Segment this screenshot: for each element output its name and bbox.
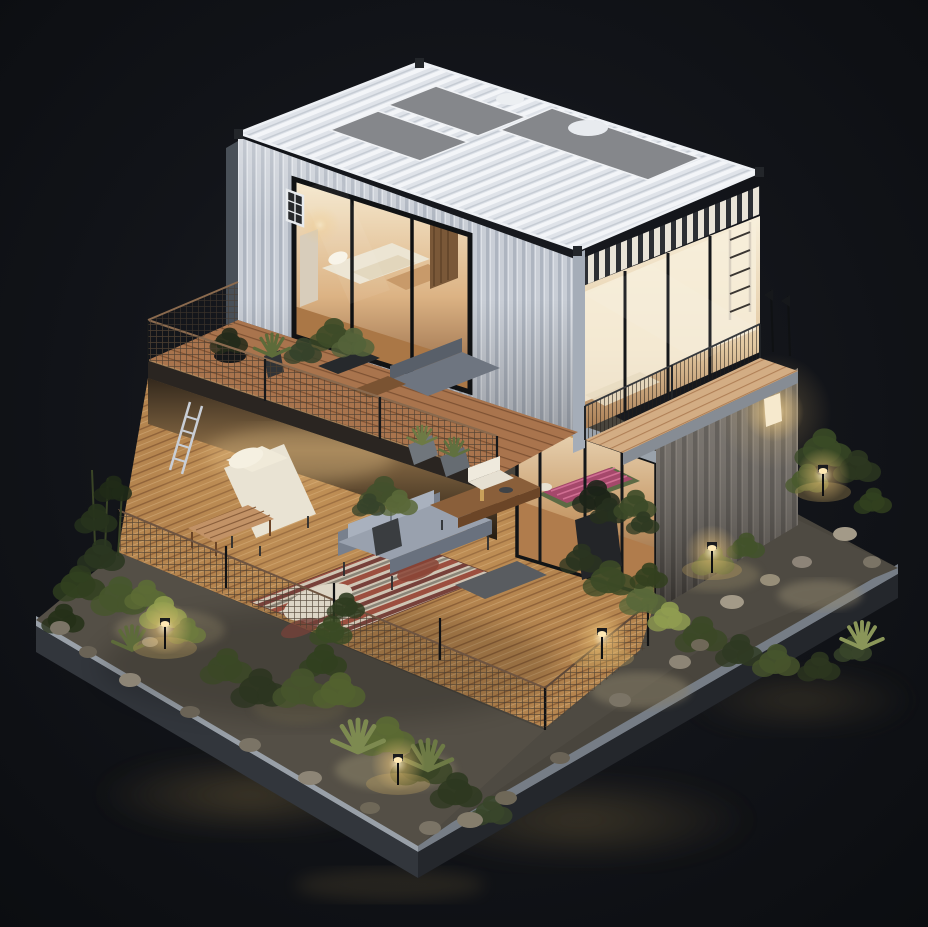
stone [79, 646, 97, 658]
stone [50, 621, 70, 635]
stone [863, 556, 881, 568]
stone [609, 693, 631, 707]
container-house-render [0, 0, 928, 927]
stone [792, 556, 812, 568]
stone [720, 595, 744, 609]
stone [691, 639, 709, 651]
lit-gravel [778, 580, 862, 610]
render-canvas [0, 0, 928, 927]
floor-reflection [295, 869, 485, 901]
stone [119, 673, 141, 687]
wall-lamp [764, 393, 782, 427]
path-light [575, 611, 629, 665]
roof-vent [568, 120, 608, 136]
stone [669, 655, 691, 669]
path-light [796, 448, 850, 502]
path-light [138, 601, 192, 655]
stone [360, 802, 380, 814]
stone [457, 812, 483, 828]
small-grid-window [287, 190, 303, 226]
corner-casting [415, 58, 424, 68]
stone [180, 706, 200, 718]
stone [550, 752, 570, 764]
stone [298, 771, 322, 785]
path-light [685, 525, 739, 579]
corner-casting [234, 129, 243, 139]
corner-casting [573, 246, 582, 256]
corner-post [573, 250, 585, 453]
stone [495, 791, 517, 805]
stone [239, 738, 261, 752]
stone [760, 574, 780, 586]
stone [419, 821, 441, 835]
roof-vent [496, 93, 524, 105]
stone [833, 527, 857, 541]
bowl [499, 487, 513, 493]
corner-casting [755, 167, 764, 177]
path-light [371, 737, 425, 791]
